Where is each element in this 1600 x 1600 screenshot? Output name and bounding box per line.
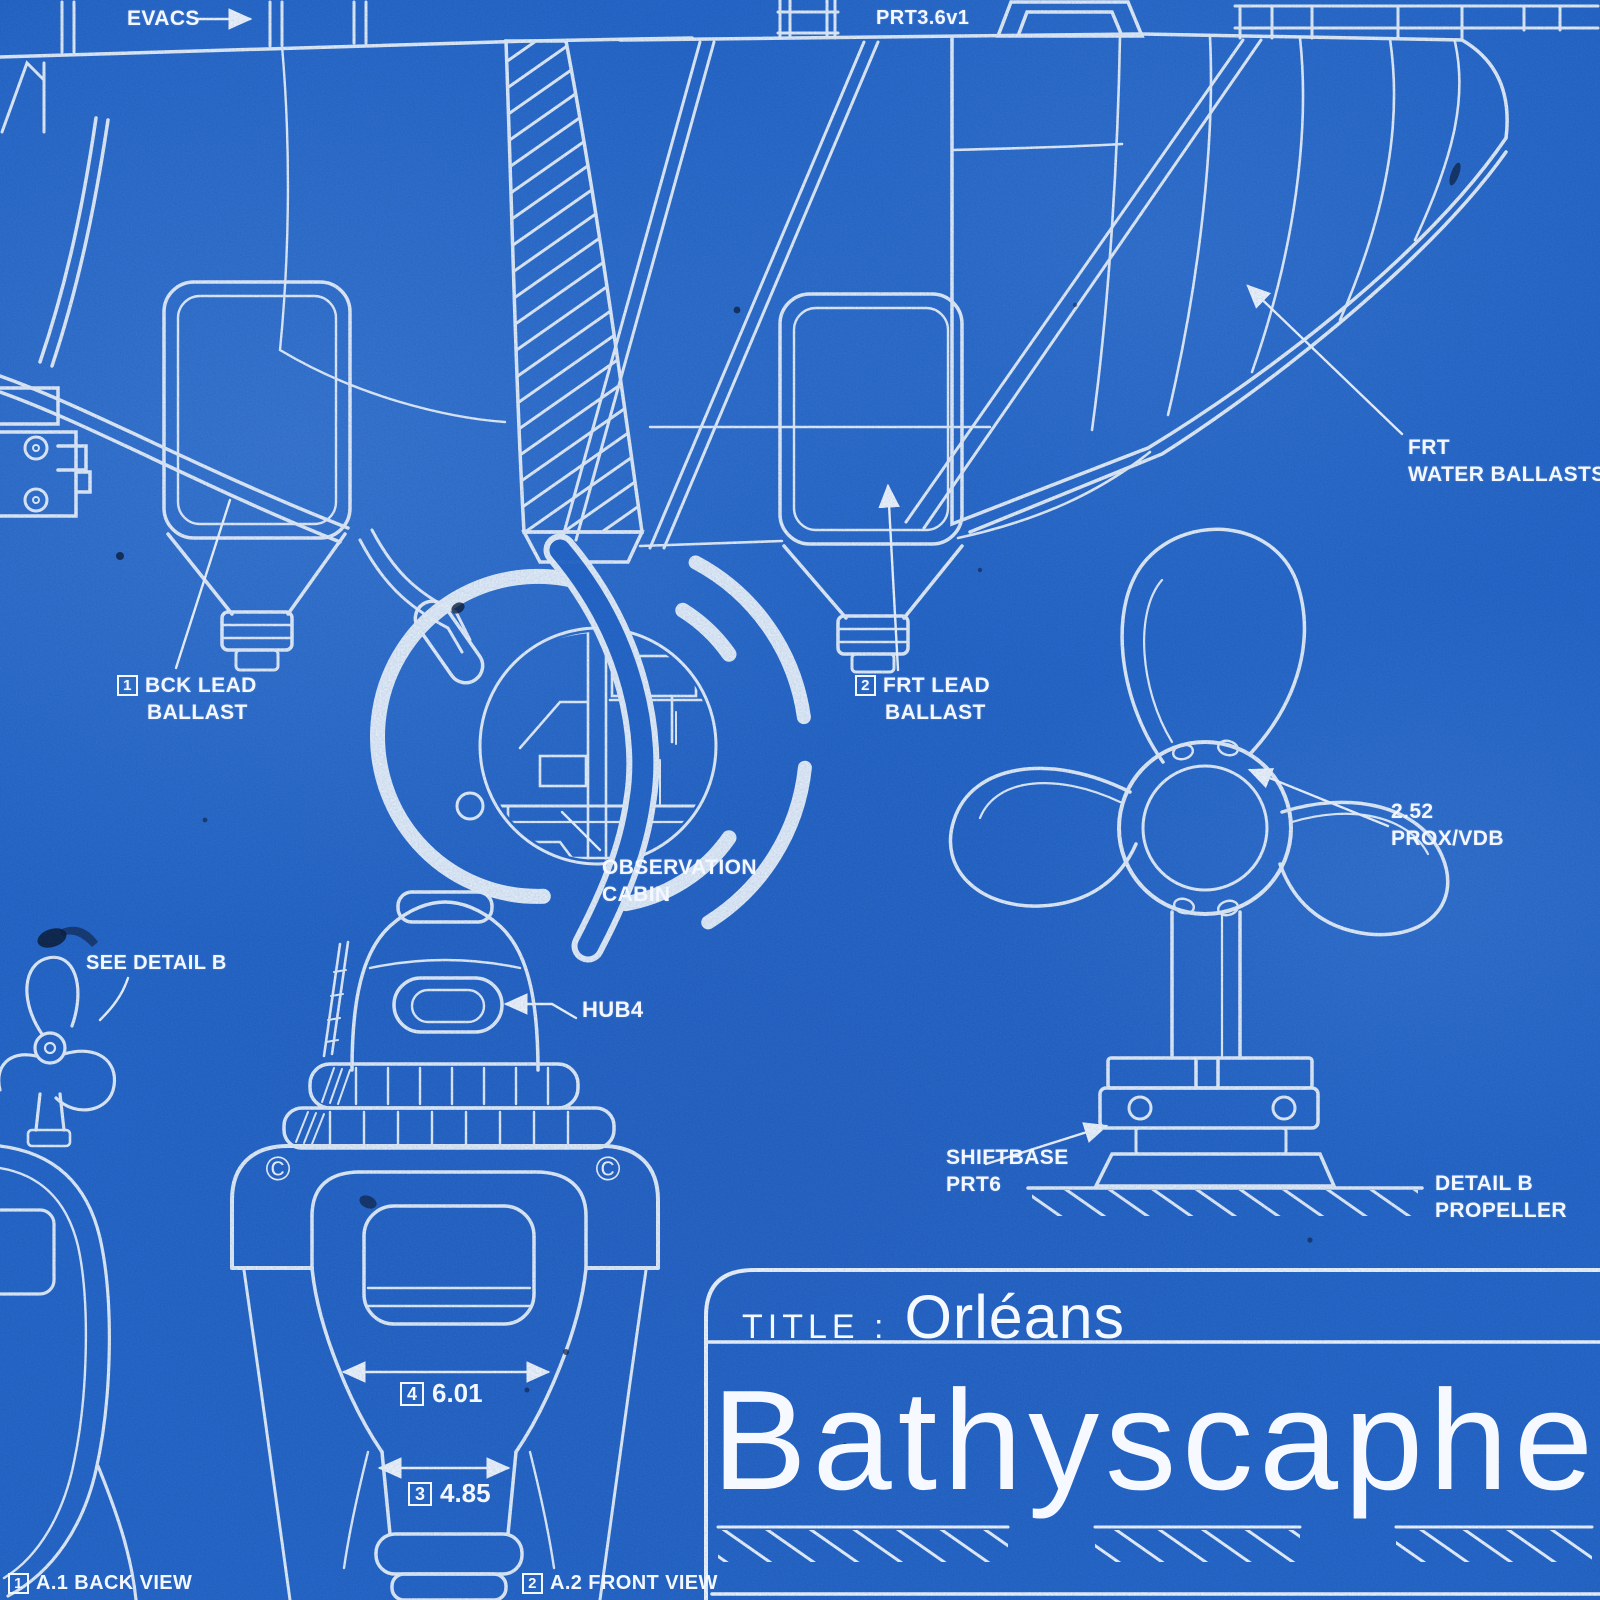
blueprint-subject-name: Bathyscaphe bbox=[712, 1366, 1599, 1516]
ref-box-2: 2 bbox=[855, 675, 876, 696]
label-shiftbase: SHIFTBASE PRT6 bbox=[946, 1144, 1069, 1198]
ref-box-1: 1 bbox=[117, 675, 138, 696]
blueprint-poster: © © EVACS PRT3.6v1 1BCK LEAD BALLAST 2FR… bbox=[0, 0, 1600, 1600]
label-bck-lead-ballast: 1BCK LEAD BALLAST bbox=[117, 672, 257, 726]
title-row: TITLE : Orléans bbox=[742, 1282, 1125, 1352]
label-front-view: 2 A.2 FRONT VIEW bbox=[522, 1572, 718, 1595]
dim-box-4: 4 bbox=[400, 1382, 424, 1406]
label-hub4: HUB4 bbox=[582, 996, 644, 1023]
label-see-detail-b: SEE DETAIL B bbox=[86, 950, 227, 977]
label-back-view: 1 A.1 BACK VIEW bbox=[8, 1572, 192, 1595]
dim-box-3: 3 bbox=[408, 1482, 432, 1506]
dimension-width: 4 6.01 bbox=[400, 1378, 483, 1409]
blueprint-line-art: © © bbox=[0, 0, 1600, 1600]
title-label: TITLE : bbox=[742, 1308, 888, 1347]
label-observation-cabin: OBSERVATION CABIN bbox=[602, 854, 757, 908]
label-frt-water-ballasts: FRT WATER BALLASTS bbox=[1408, 434, 1600, 488]
label-frt-lead-ballast: 2FRT LEAD BALLAST bbox=[855, 672, 990, 726]
grain-dark bbox=[0, 0, 1600, 1600]
label-part-number: PRT3.6v1 bbox=[876, 5, 969, 32]
title-value: Orléans bbox=[904, 1282, 1125, 1352]
label-prox-vdb: 2.52 PROX/VDB bbox=[1391, 798, 1504, 852]
dimension-lower-width-value: 4.85 bbox=[440, 1478, 491, 1509]
view-box-1: 1 bbox=[8, 1573, 29, 1594]
dimension-width-value: 6.01 bbox=[432, 1378, 483, 1409]
label-evacs: EVACS bbox=[127, 5, 200, 32]
label-detail-b: DETAIL B PROPELLER bbox=[1435, 1170, 1567, 1224]
dimension-lower-width: 3 4.85 bbox=[408, 1478, 491, 1509]
view-box-2: 2 bbox=[522, 1573, 543, 1594]
